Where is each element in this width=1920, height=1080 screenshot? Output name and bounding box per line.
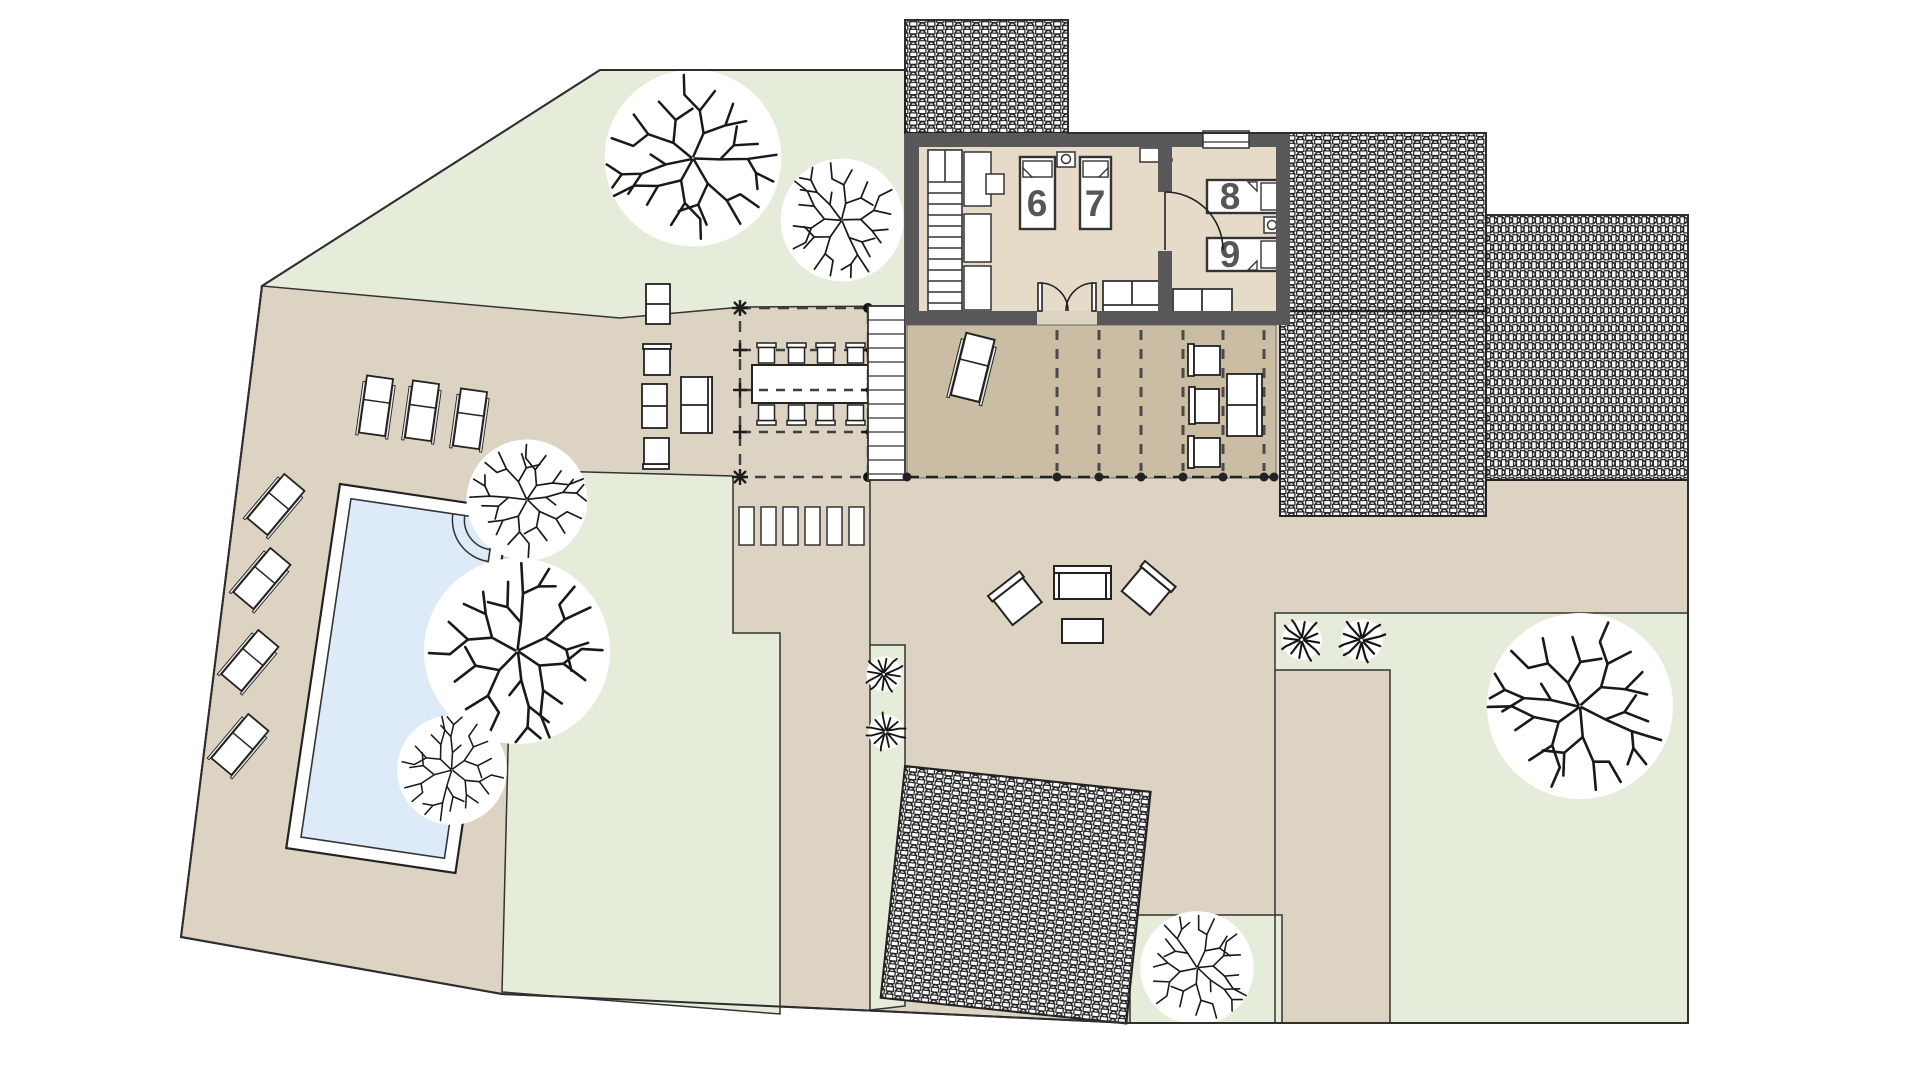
roof-right-1 <box>1280 133 1486 516</box>
terrace-chairs <box>1188 344 1220 468</box>
terrace-table <box>1227 374 1262 436</box>
bed-7: 7 <box>1080 157 1111 229</box>
coffee-table <box>1062 619 1103 643</box>
bed-9: 9 <box>1207 234 1282 275</box>
site-plan-page: 6 7 8 9 <box>0 0 1920 1080</box>
bed-6: 6 <box>1020 157 1055 229</box>
roof-right-2 <box>1486 215 1688 480</box>
building: 6 7 8 9 <box>905 131 1290 325</box>
garden-table <box>681 377 712 433</box>
nightstand <box>1057 152 1075 167</box>
bed-7-label: 7 <box>1085 183 1106 224</box>
bed-8: 8 <box>1207 176 1282 217</box>
roof-bottom <box>881 766 1151 1024</box>
interior-stair <box>928 150 962 311</box>
garden-chair <box>643 344 671 375</box>
garden-chair <box>643 438 669 469</box>
bed-8-label: 8 <box>1220 176 1241 217</box>
site-plan-drawing: 6 7 8 9 <box>0 0 1920 1080</box>
covered-terrace <box>903 325 1279 482</box>
roof-top <box>905 20 1068 133</box>
garden-bench <box>646 284 670 324</box>
bed-6-label: 6 <box>1027 183 1048 224</box>
pergola-table <box>752 365 868 403</box>
exterior-stair <box>868 306 905 480</box>
outdoor-sofa <box>1054 566 1111 599</box>
